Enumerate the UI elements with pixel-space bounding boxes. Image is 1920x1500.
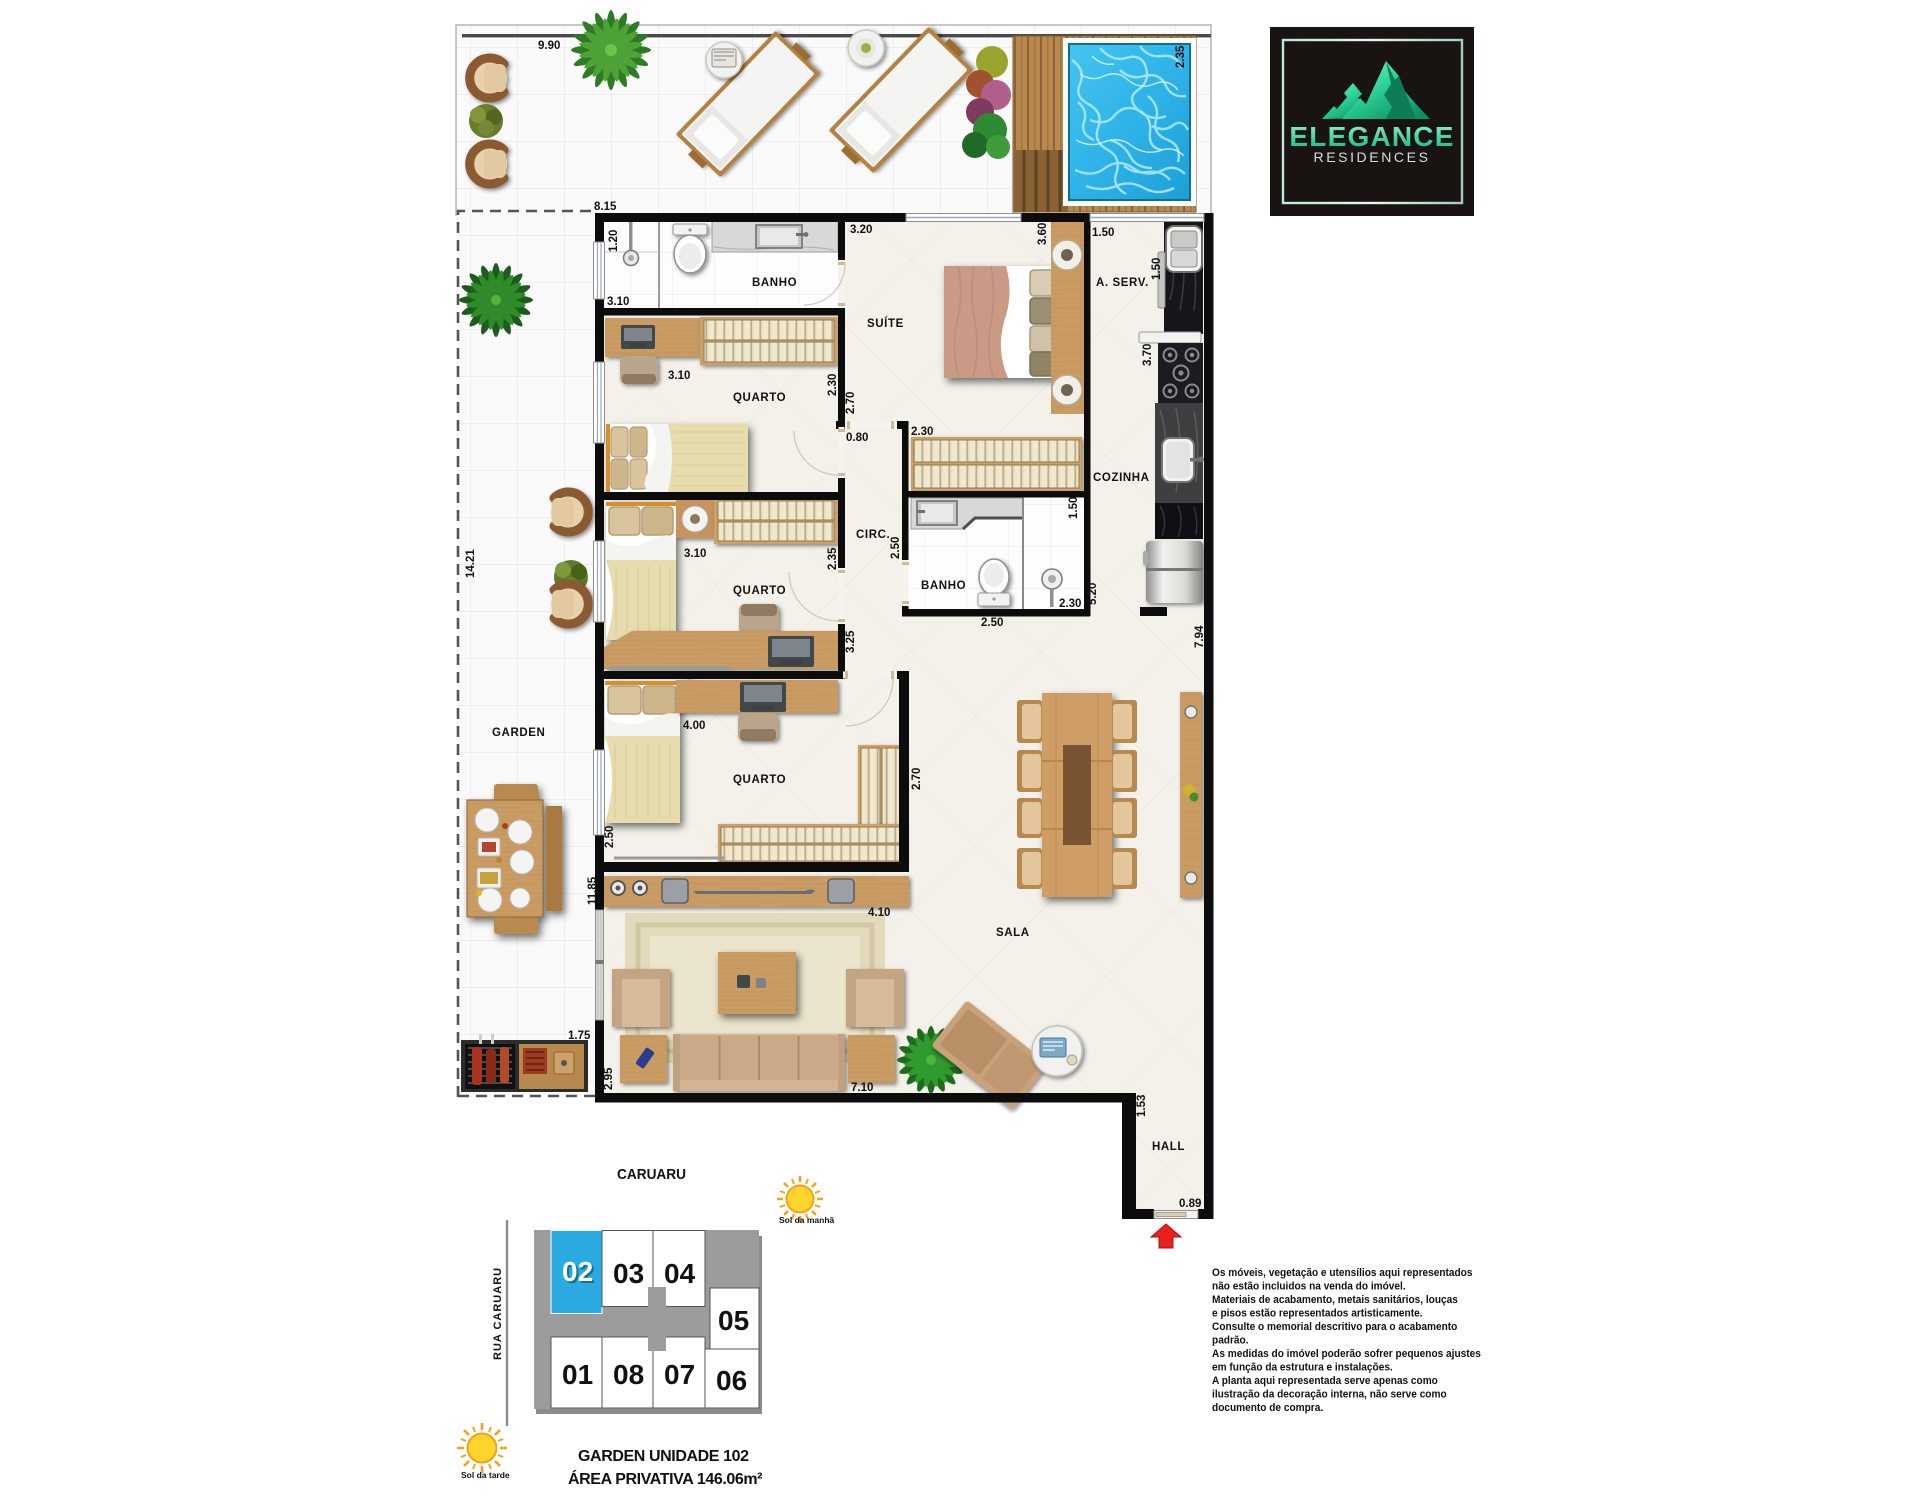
svg-text:Os móveis, vegetação e utensíl: Os móveis, vegetação e utensílios aqui r… — [1212, 1267, 1473, 1279]
svg-text:2.30: 2.30 — [827, 374, 839, 396]
svg-text:7.94: 7.94 — [1194, 625, 1206, 648]
svg-text:Consulte o memorial descritivo: Consulte o memorial descritivo para o ac… — [1212, 1321, 1458, 1333]
svg-text:QUARTO: QUARTO — [733, 585, 786, 597]
svg-text:06: 06 — [716, 1365, 747, 1396]
svg-text:RESIDENCES: RESIDENCES — [1313, 149, 1430, 165]
svg-text:2.50: 2.50 — [890, 537, 902, 559]
svg-text:8.15: 8.15 — [594, 201, 617, 213]
svg-text:As medidas do imóvel poderão s: As medidas do imóvel poderão sofrer pequ… — [1212, 1348, 1481, 1360]
svg-text:3.10: 3.10 — [684, 548, 706, 560]
svg-text:4.00: 4.00 — [683, 720, 705, 732]
svg-text:2.70: 2.70 — [845, 392, 857, 414]
svg-text:BANHO: BANHO — [752, 277, 797, 289]
svg-text:Sol da manhã: Sol da manhã — [779, 1215, 835, 1225]
svg-text:1.50: 1.50 — [1151, 258, 1163, 280]
svg-text:0.80: 0.80 — [846, 432, 868, 444]
svg-text:4.10: 4.10 — [868, 907, 890, 919]
svg-text:3.25: 3.25 — [845, 630, 857, 653]
svg-text:2.35: 2.35 — [1175, 45, 1187, 68]
svg-text:05: 05 — [718, 1305, 749, 1336]
svg-text:2.30: 2.30 — [911, 426, 933, 438]
svg-text:em função da estrutura e insta: em função da estrutura e instalações. — [1212, 1361, 1393, 1373]
svg-text:01: 01 — [562, 1359, 593, 1390]
svg-text:GARDEN UNIDADE 102: GARDEN UNIDADE 102 — [578, 1448, 749, 1465]
svg-text:Materiais de acabamento, metai: Materiais de acabamento, metais sanitári… — [1212, 1294, 1458, 1306]
svg-text:03: 03 — [613, 1258, 644, 1289]
svg-text:1.75: 1.75 — [568, 1030, 591, 1042]
svg-text:A. SERV.: A. SERV. — [1096, 277, 1149, 289]
svg-text:07: 07 — [664, 1359, 695, 1390]
svg-text:9.90: 9.90 — [538, 40, 560, 52]
svg-text:COZINHA: COZINHA — [1093, 472, 1150, 484]
svg-text:1.50: 1.50 — [1068, 497, 1080, 519]
svg-text:3.70: 3.70 — [1142, 344, 1154, 366]
svg-text:2.30: 2.30 — [1059, 598, 1081, 610]
svg-text:3.10: 3.10 — [607, 296, 629, 308]
svg-text:7.10: 7.10 — [851, 1082, 873, 1094]
svg-text:GARDEN: GARDEN — [492, 727, 545, 739]
svg-text:3.60: 3.60 — [1037, 223, 1049, 245]
svg-text:padrão.: padrão. — [1212, 1334, 1249, 1346]
svg-text:0.89: 0.89 — [1179, 1198, 1201, 1210]
svg-text:2.35: 2.35 — [827, 547, 839, 570]
svg-text:02: 02 — [562, 1256, 593, 1287]
svg-text:2.50: 2.50 — [604, 826, 616, 848]
svg-text:e pisos estão representados ar: e pisos estão representados artisticamen… — [1212, 1307, 1423, 1319]
svg-text:QUARTO: QUARTO — [733, 392, 786, 404]
svg-text:3.10: 3.10 — [668, 370, 690, 382]
svg-text:1.50: 1.50 — [1092, 227, 1114, 239]
svg-text:3.20: 3.20 — [850, 224, 872, 236]
svg-text:QUARTO: QUARTO — [733, 774, 786, 786]
svg-text:1.20: 1.20 — [608, 230, 620, 252]
svg-text:08: 08 — [613, 1359, 644, 1390]
svg-text:RUA CARUARU: RUA CARUARU — [492, 1267, 504, 1360]
svg-text:documento de compra.: documento de compra. — [1212, 1402, 1323, 1414]
svg-text:SALA: SALA — [996, 927, 1030, 939]
svg-text:BANHO: BANHO — [921, 580, 966, 592]
svg-text:1.53: 1.53 — [1136, 1095, 1148, 1117]
svg-text:2.50: 2.50 — [981, 617, 1003, 629]
svg-text:2.70: 2.70 — [911, 768, 923, 790]
svg-text:HALL: HALL — [1152, 1141, 1185, 1153]
svg-text:5.20: 5.20 — [1087, 583, 1099, 605]
svg-text:ilustração da decoração intern: ilustração da decoração interna, não ser… — [1212, 1388, 1447, 1400]
svg-text:CARUARU: CARUARU — [617, 1166, 686, 1183]
svg-text:14.21: 14.21 — [465, 549, 477, 578]
svg-text:11.85: 11.85 — [587, 876, 599, 905]
svg-text:CIRC.: CIRC. — [856, 529, 890, 541]
svg-text:SUÍTE: SUÍTE — [867, 317, 904, 330]
svg-text:ÁREA PRIVATIVA 146.06m²: ÁREA PRIVATIVA 146.06m² — [568, 1469, 762, 1488]
svg-text:04: 04 — [664, 1258, 696, 1289]
svg-text:ELEGANCE: ELEGANCE — [1289, 121, 1454, 152]
svg-text:2.95: 2.95 — [603, 1067, 615, 1090]
svg-text:Sol da tarde: Sol da tarde — [461, 1470, 510, 1480]
svg-text:não estão incluidos na venda d: não estão incluidos na venda do imóvel. — [1212, 1280, 1406, 1292]
svg-text:A planta aqui representada ser: A planta aqui representada serve apenas … — [1212, 1375, 1438, 1387]
